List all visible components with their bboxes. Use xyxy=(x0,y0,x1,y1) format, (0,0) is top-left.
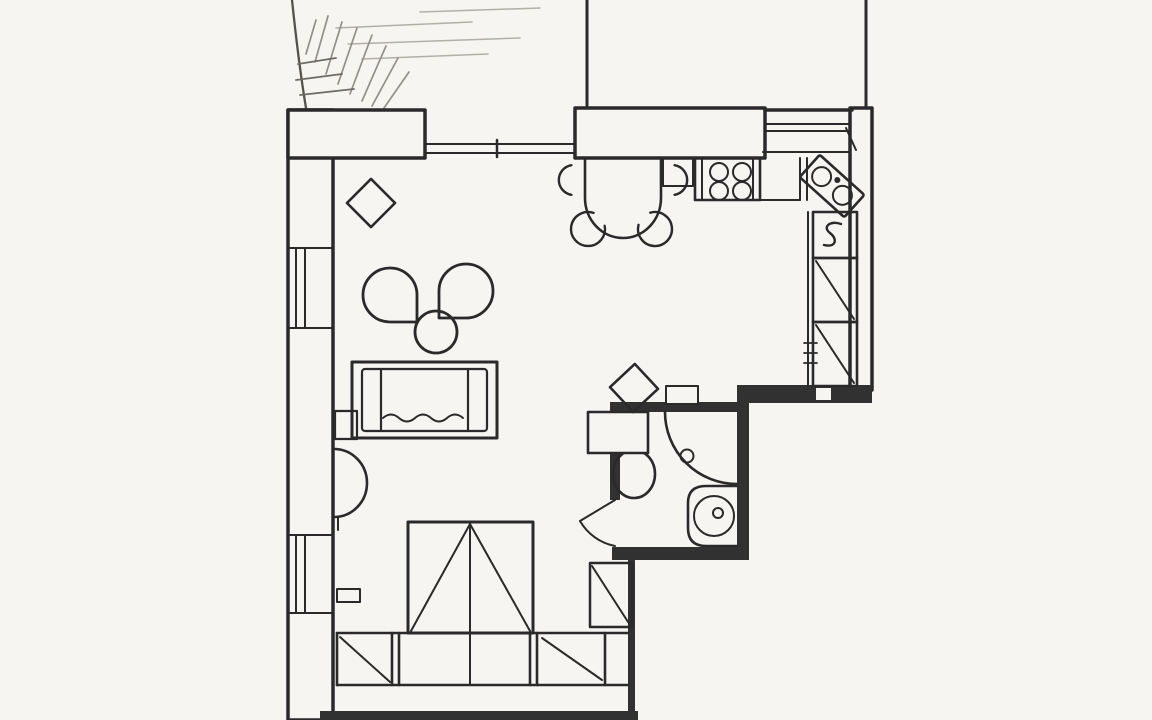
bathroom-right-wall xyxy=(737,403,749,560)
kitchen-top-wall xyxy=(575,108,765,158)
top-left-wall-block xyxy=(288,110,425,158)
step-wall-notch xyxy=(816,388,831,400)
toilet-cistern xyxy=(588,412,648,453)
kitchen-step-wall xyxy=(737,385,872,403)
floor-plan-canvas xyxy=(0,0,1152,720)
bathroom-bottom-wall xyxy=(612,547,749,560)
right-exterior-wall xyxy=(850,108,872,390)
chimney-bump xyxy=(666,386,698,404)
left-exterior-wall xyxy=(288,110,333,720)
bottom-exterior-wall xyxy=(320,711,638,720)
